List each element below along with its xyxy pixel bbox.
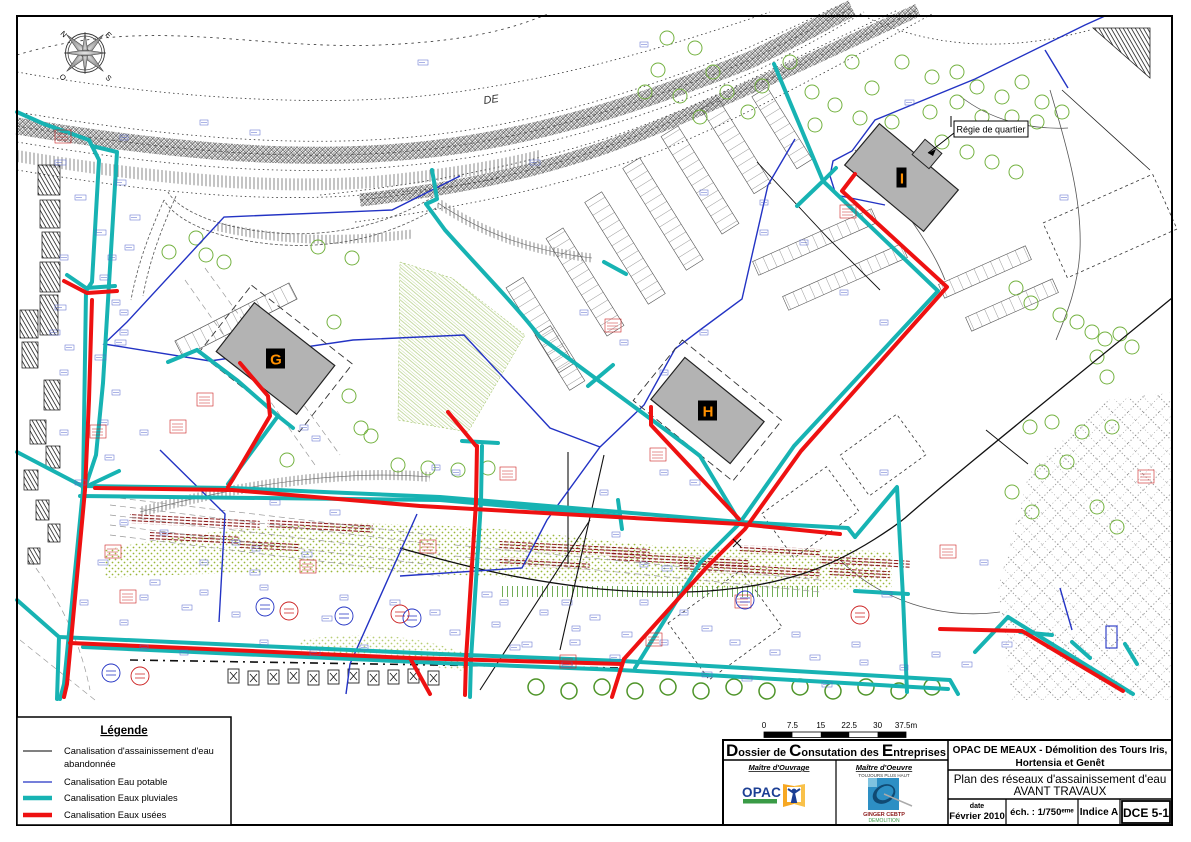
- svg-text:I: I: [900, 171, 904, 188]
- svg-text:OPAC DE MEAUX - Démolition des: OPAC DE MEAUX - Démolition des Tours Iri…: [953, 745, 1168, 756]
- svg-text:H: H: [703, 404, 714, 421]
- svg-text:Maître d'Ouvrage: Maître d'Ouvrage: [749, 763, 810, 772]
- svg-text:OPAC: OPAC: [742, 785, 781, 800]
- svg-text:Canalisation Eaux usées: Canalisation Eaux usées: [64, 810, 167, 820]
- svg-text:G: G: [270, 352, 282, 369]
- svg-text:Hortensia et Genêt: Hortensia et Genêt: [1016, 758, 1106, 769]
- svg-text:DE: DE: [483, 93, 500, 107]
- svg-text:Février 2010: Février 2010: [949, 811, 1004, 822]
- svg-text:15: 15: [816, 721, 825, 730]
- svg-text:Légende: Légende: [100, 725, 147, 737]
- svg-text:30: 30: [873, 721, 882, 730]
- svg-text:date: date: [970, 803, 985, 810]
- svg-text:DCE 5-1: DCE 5-1: [1123, 806, 1169, 820]
- svg-text:7.5: 7.5: [787, 721, 799, 730]
- svg-text:Indice A: Indice A: [1080, 807, 1119, 818]
- svg-text:37.5m: 37.5m: [895, 721, 918, 730]
- svg-text:22.5: 22.5: [841, 721, 857, 730]
- svg-text:TOUJOURS PLUS HAUT: TOUJOURS PLUS HAUT: [858, 773, 909, 778]
- svg-text:abandonnée: abandonnée: [64, 759, 116, 769]
- svg-text:Canalisation d'assainissement: Canalisation d'assainissement d'eau: [64, 746, 214, 756]
- svg-text:Maître d'Oeuvre: Maître d'Oeuvre: [856, 763, 912, 772]
- svg-text:0: 0: [762, 721, 767, 730]
- svg-text:éch. : 1/750ᵉᵐᵉ: éch. : 1/750ᵉᵐᵉ: [1010, 807, 1074, 818]
- svg-text:Canalisation Eau potable: Canalisation Eau potable: [64, 777, 167, 787]
- svg-text:AVANT TRAVAUX: AVANT TRAVAUX: [1014, 785, 1107, 798]
- svg-text:Régie de quartier: Régie de quartier: [956, 125, 1025, 135]
- svg-text:Canalisation Eaux pluviales: Canalisation Eaux pluviales: [64, 793, 178, 803]
- svg-text:DEMOLITION: DEMOLITION: [868, 818, 900, 824]
